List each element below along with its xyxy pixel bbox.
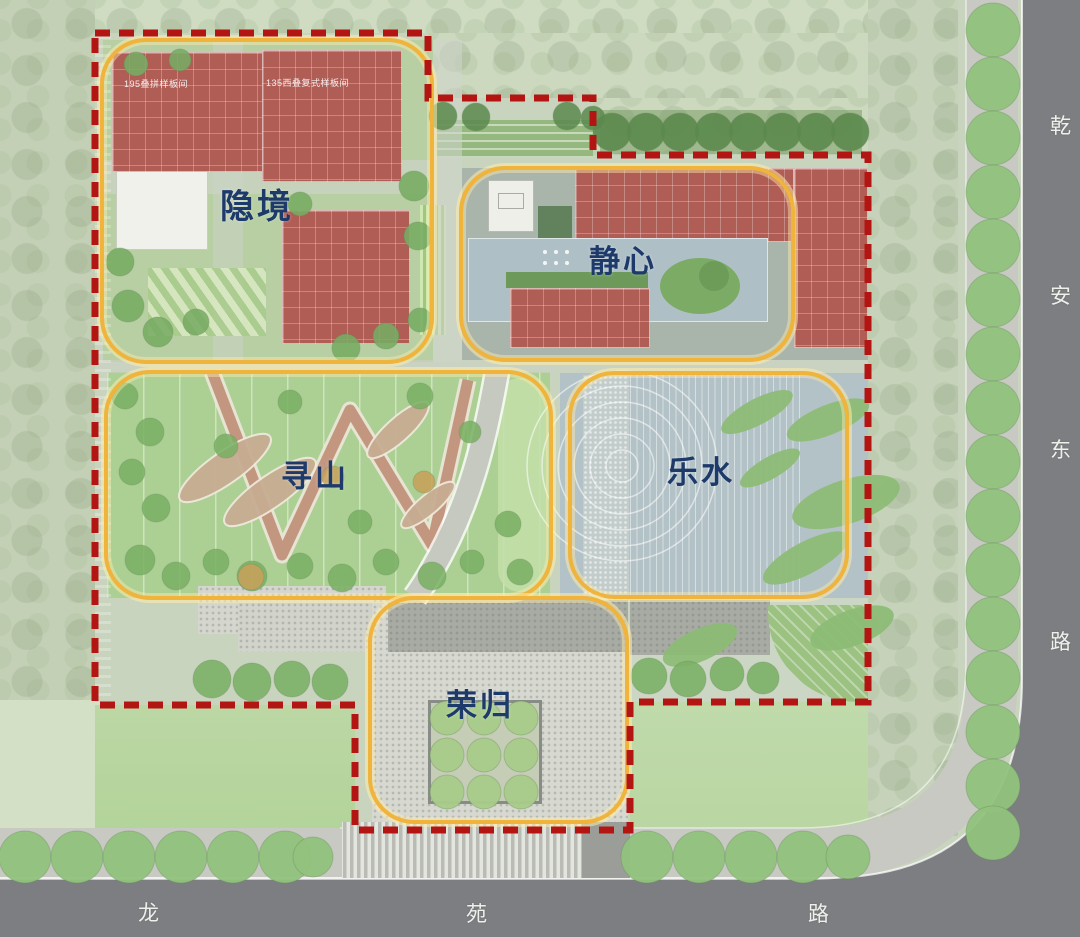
zone-label-yinjing: 隐境 <box>220 190 294 224</box>
road-east-char-0: 乾 <box>1050 116 1071 137</box>
road-south-char-2: 路 <box>808 904 829 925</box>
road-east-char-3: 路 <box>1050 632 1071 653</box>
road-south-char-0: 龙 <box>138 903 159 924</box>
zone-label-xunshan: 寻山 <box>281 461 349 492</box>
road-east-char-1: 安 <box>1050 286 1071 307</box>
zone-label-jingxin: 静心 <box>589 246 657 277</box>
site-plan: 隐境 静心 寻山 乐水 荣归 195叠拼样板间 135西叠复式样板间 乾 安 东… <box>0 0 1080 937</box>
building-annotation-b: 135西叠复式样板间 <box>266 79 349 88</box>
building-annotation-a: 195叠拼样板间 <box>124 80 188 89</box>
road-south-char-1: 苑 <box>466 904 487 925</box>
zone-label-leshui: 乐水 <box>667 457 735 488</box>
boundary-layer <box>0 0 1080 937</box>
zone-label-ronggui: 荣归 <box>446 690 514 721</box>
road-east-char-2: 东 <box>1050 440 1071 461</box>
